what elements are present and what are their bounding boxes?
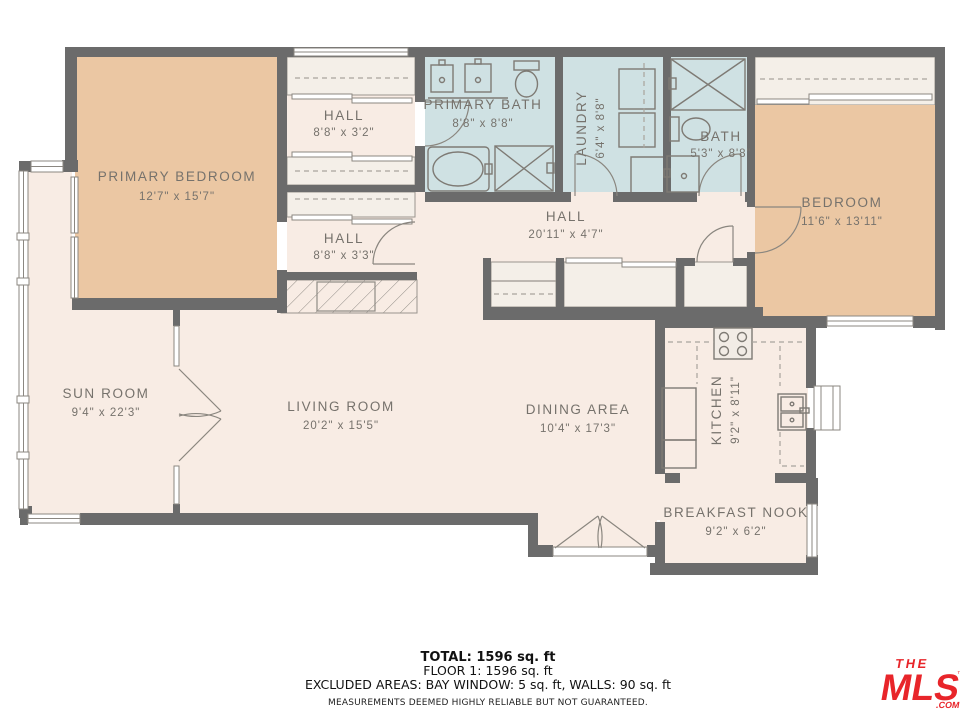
room-label-dining-area: DINING AREA [526, 402, 631, 417]
fireplace-hatch [281, 280, 417, 313]
room-dims-hall-top: 8'8" x 3'2" [313, 127, 374, 139]
room-label-primary-bedroom: PRIMARY BEDROOM [98, 169, 257, 184]
closet-hall-top [287, 57, 415, 95]
stove-fixture [714, 328, 752, 359]
closet-hall-center-3 [684, 262, 747, 307]
mls-logo: THE MLS ™ .COM [877, 656, 960, 710]
dining-door-threshold [553, 547, 647, 556]
room-dims-sun-room: 9'4" x 22'3" [72, 407, 141, 419]
room-label-bedroom: BEDROOM [802, 195, 883, 210]
room-dims-living-room: 20'2" x 15'5" [303, 420, 379, 432]
closet-hall-mid-b [287, 192, 415, 217]
closet-hall-center-1 [491, 262, 556, 307]
room-label-living-room: LIVING ROOM [287, 399, 395, 414]
floor-plan-canvas: PRIMARY BEDROOM 12'7" x 15'7" HALL 8'8" … [0, 0, 960, 720]
room-label-bath: BATH [700, 129, 741, 144]
floor-plan-page: PRIMARY BEDROOM 12'7" x 15'7" HALL 8'8" … [0, 0, 960, 720]
room-bedroom [755, 105, 935, 320]
room-dims-kitchen: 9'2" x 8'11" [730, 376, 742, 444]
room-label-sun-room: SUN ROOM [62, 386, 149, 401]
room-label-hall-top: HALL [324, 108, 364, 123]
hall-top-window [294, 48, 408, 56]
room-dims-primary-bath: 8'8" x 8'8" [452, 118, 513, 130]
kitchen-sink-window [814, 386, 840, 430]
footer: TOTAL: 1596 sq. ft FLOOR 1: 1596 sq. ft … [305, 650, 671, 708]
closet-hall-center-2 [564, 262, 676, 307]
room-label-breakfast-nook: BREAKFAST NOOK [663, 505, 808, 520]
room-dims-hall-center: 20'11" x 4'7" [528, 229, 603, 241]
mls-logo-com: .COM [935, 700, 960, 710]
sun-bedroom-divider-windows [71, 177, 78, 298]
room-label-kitchen: KITCHEN [709, 375, 724, 445]
sun-room-top-window [31, 161, 63, 172]
bay-window [17, 171, 29, 509]
room-label-hall-mid: HALL [324, 231, 364, 246]
room-label-hall-center: HALL [546, 209, 586, 224]
room-label-primary-bath: PRIMARY BATH [424, 97, 543, 112]
mls-logo-tm: ™ [956, 671, 960, 678]
room-dims-bath: 5'3" x 8'8" [690, 148, 751, 160]
room-dims-primary-bedroom: 12'7" x 15'7" [139, 191, 215, 203]
footer-floor: FLOOR 1: 1596 sq. ft [423, 663, 553, 678]
room-dims-laundry: 6'4" x 8'8" [595, 97, 607, 158]
room-fills [27, 57, 935, 567]
footer-excluded: EXCLUDED AREAS: BAY WINDOW: 5 sq. ft, WA… [305, 677, 671, 692]
room-dims-breakfast-nook: 9'2" x 6'2" [705, 526, 766, 538]
room-dims-dining-area: 10'4" x 17'3" [540, 423, 616, 435]
footer-disclaimer: MEASUREMENTS DEEMED HIGHLY RELIABLE BUT … [328, 698, 648, 708]
living-bottom-window [28, 514, 80, 523]
room-dims-bedroom: 11'6" x 13'11" [801, 216, 883, 228]
room-dims-hall-mid: 8'8" x 3'3" [313, 250, 374, 262]
room-label-laundry: LAUNDRY [574, 90, 589, 165]
bedroom-bottom-window [827, 316, 913, 326]
